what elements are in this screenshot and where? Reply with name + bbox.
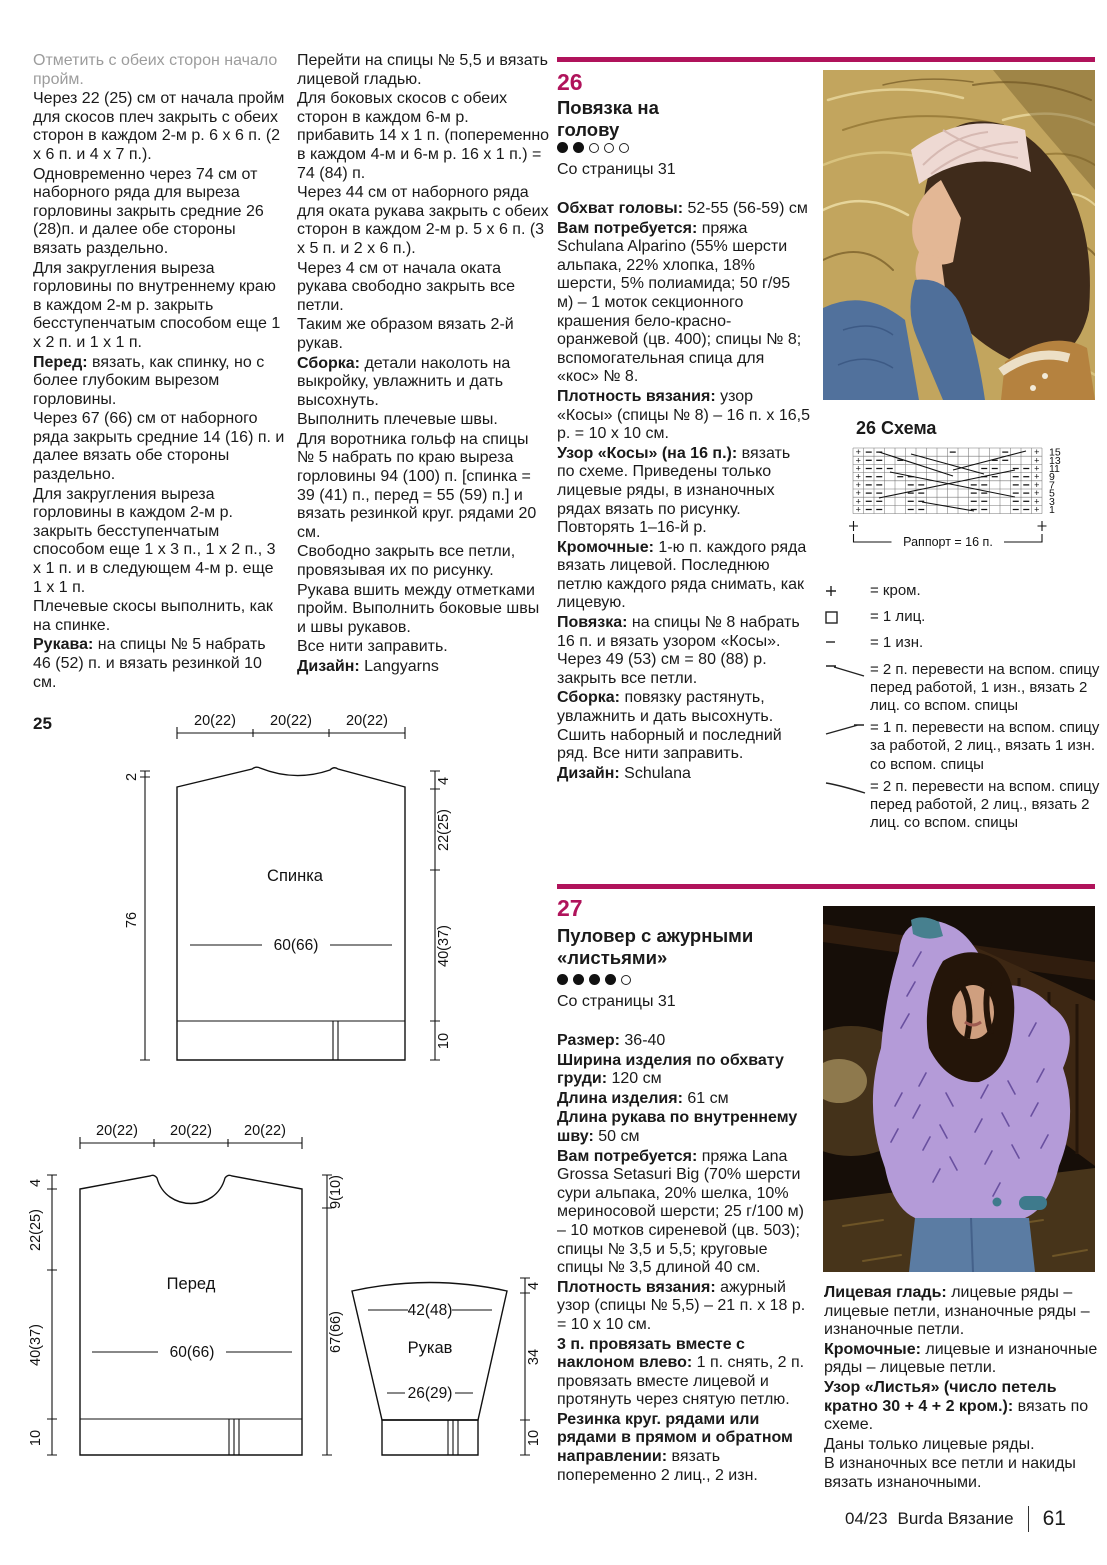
pattern-26-instructions: Обхват головы: 52-55 (56-59) см Вам потр…: [557, 200, 810, 784]
cable-back-symbol-icon: [824, 719, 870, 774]
paragraph: Плотность вязания: ажурный узор (спицы №…: [557, 1279, 810, 1335]
pattern-27-stitch-notes: Лицевая гладь: лицевые ряды – лицевые пе…: [824, 1284, 1100, 1494]
paragraph: Перейти на спицы № 5,5 и вязать лицевой …: [297, 52, 550, 89]
cable-front-symbol-icon: [824, 661, 870, 716]
accent-bar: [557, 57, 1095, 62]
difficulty-dot: [589, 143, 599, 153]
measurement-label: 4: [436, 777, 452, 785]
schematic-back: 20(22) 20(22) 20(22) Спинка 60(66) 2 76 …: [40, 705, 510, 1095]
difficulty-dot: [573, 974, 584, 985]
rib-marks: [448, 1420, 458, 1455]
rapport-label: Раппорт = 16 п.: [903, 535, 993, 549]
purl-symbol-icon: [824, 634, 870, 656]
plus-symbol-icon: [824, 582, 870, 604]
footer-divider: [1028, 1506, 1029, 1532]
paragraph: Плечевые скосы выполнить, как на спинке.: [33, 598, 286, 635]
paragraph: Ширина изделия по обхвату груди: 120 см: [557, 1052, 810, 1089]
difficulty-dot: [621, 975, 631, 985]
pattern-number: 26: [557, 70, 583, 94]
paragraph: Вам потребуется: пряжа Schulana Alparino…: [557, 220, 810, 387]
svg-text:1: 1: [1049, 504, 1055, 516]
paragraph: Повязка: на спицы № 8 набрать 16 п. и вя…: [557, 614, 810, 688]
measurement-label: 60(66): [170, 1344, 215, 1361]
measurement-label: 42(48): [408, 1302, 453, 1319]
measurement-label: 2: [124, 773, 140, 781]
difficulty-dot: [605, 974, 616, 985]
back-left-dimension: [140, 771, 150, 1060]
text-column-2: Перейти на спицы № 5,5 и вязать лицевой …: [297, 52, 550, 678]
difficulty-dot: [619, 143, 629, 153]
pattern-27-instructions: Размер: 36-40 Ширина изделия по обхвату …: [557, 1032, 810, 1486]
piece-name: Перед: [167, 1275, 216, 1293]
paragraph: Все нити заправить.: [297, 638, 550, 657]
paragraph: Через 22 (25) см от начала пройм для ско…: [33, 90, 286, 164]
rapport-bracket: Раппорт = 16 п.: [849, 521, 1047, 549]
page-footer: 04/23 Burda Вязание 61: [845, 1506, 1066, 1532]
difficulty-dot: [604, 143, 614, 153]
paragraph: Перед: вязать, как спинку, но с более гл…: [33, 354, 286, 410]
knit-symbol-icon: [824, 608, 870, 630]
paragraph: Для закругления выреза горловины по внут…: [33, 260, 286, 353]
measurement-label: 20(22): [194, 713, 236, 729]
paragraph: Для боковых скосов с обеих сторон в кажд…: [297, 90, 550, 183]
paragraph: Лицевая гладь: лицевые ряды – лицевые пе…: [824, 1284, 1100, 1340]
paragraph: Отметить с обеих сторон начало пройм.: [33, 52, 286, 89]
paragraph: Кромочные: лицевые и изнаночные ряды – л…: [824, 1341, 1100, 1378]
paragraph: Дизайн: Schulana: [557, 765, 810, 784]
chart-legend: = кром. = 1 лиц. = 1 изн. = 2 п. перевес…: [824, 582, 1102, 836]
paragraph: 3 п. провязать вместе с наклоном влево: …: [557, 1336, 810, 1410]
measurement-label: 76: [124, 912, 140, 928]
schematic-front: 20(22) 20(22) 20(22) Перед 60(66) 4 22(2…: [18, 1092, 368, 1497]
difficulty-dot: [557, 142, 568, 153]
source-page-ref: Со страницы 31: [557, 161, 676, 179]
knitting-chart: ++++++++++++++++15131197531 Раппорт = 16…: [845, 442, 1065, 564]
paragraph: Резинка круг. рядами или рядами в прямом…: [557, 1411, 810, 1485]
measurement-label: 34: [526, 1349, 542, 1365]
paragraph: Плотность вязания: узор «Косы» (спицы № …: [557, 388, 810, 444]
rib-marks: [229, 1419, 239, 1455]
pattern-title: Повязка на голову: [557, 97, 707, 141]
difficulty-dot: [589, 974, 600, 985]
accent-bar: [557, 884, 1095, 889]
measurement-label: 10: [28, 1430, 44, 1446]
magazine-page: Отметить с обеих сторон начало пройм. Че…: [0, 0, 1107, 1565]
rib-marks: [333, 1021, 338, 1060]
svg-text:+: +: [856, 505, 861, 515]
measurement-label: 20(22): [346, 713, 388, 729]
paragraph: Сборка: детали наколоть на выкройку, увл…: [297, 355, 550, 411]
paragraph: В изнаночных все петли и накиды вязать и…: [824, 1455, 1100, 1492]
page-number: 61: [1043, 1507, 1066, 1531]
paragraph: Рукава: на спицы № 5 набрать 46 (52) п. …: [33, 636, 286, 692]
legend-item: = 1 изн.: [824, 634, 1102, 656]
legend-item: = 1 п. перевести на вспом. спицу за рабо…: [824, 719, 1102, 774]
paragraph: Узор «Листья» (число петель кратно 30 + …: [824, 1379, 1100, 1435]
measurement-label: 9(10): [328, 1175, 344, 1209]
measurement-label: 60(66): [274, 937, 319, 954]
footer-issue: 04/23: [845, 1509, 888, 1529]
measurement-label: 22(25): [28, 1209, 44, 1251]
paragraph: Узор «Косы» (на 16 п.): вязать по схеме.…: [557, 445, 810, 538]
paragraph: Вам потребуется: пряжа Lana Grossa Setas…: [557, 1148, 810, 1278]
text-column-1: Отметить с обеих сторон начало пройм. Че…: [33, 52, 286, 693]
paragraph: Выполнить плечевые швы.: [297, 411, 550, 430]
difficulty-dot: [573, 142, 584, 153]
paragraph: Даны только лицевые ряды.: [824, 1436, 1100, 1455]
measurement-label: 40(37): [436, 925, 452, 967]
measurement-label: 20(22): [170, 1123, 212, 1139]
legend-item: = 2 п. перевести на вспом. спицу перед р…: [824, 661, 1102, 716]
source-page-ref: Со страницы 31: [557, 993, 676, 1011]
legend-item: = 1 лиц.: [824, 608, 1102, 630]
paragraph: Через 44 см от наборного ряда для оката …: [297, 184, 550, 258]
difficulty-rating: [557, 140, 634, 158]
sleeve-cuff: [382, 1420, 478, 1455]
measurement-label: 20(22): [270, 713, 312, 729]
paragraph: Размер: 36-40: [557, 1032, 810, 1051]
legend-item: = кром.: [824, 582, 1102, 604]
paragraph: Для закругления выреза горловины в каждо…: [33, 486, 286, 598]
measurement-label: 40(37): [28, 1324, 44, 1366]
paragraph: Свободно закрыть все петли, провязывая и…: [297, 543, 550, 580]
front-left-dimension: [47, 1175, 57, 1455]
cable-front-4-symbol-icon: [824, 778, 870, 833]
measurement-label: 4: [526, 1282, 542, 1290]
measurement-label: 10: [436, 1033, 452, 1049]
paragraph: Кромочные: 1-ю п. каждого ряда вязать ли…: [557, 539, 810, 613]
pattern-title: Пуловер с ажурными «листьями»: [557, 925, 787, 969]
difficulty-dot: [557, 974, 568, 985]
paragraph: Через 4 см от начала оката рукава свобод…: [297, 260, 550, 316]
measurement-label: 20(22): [244, 1123, 286, 1139]
sleeve-right-dimension: [520, 1278, 530, 1455]
photo-pullover-model: [823, 906, 1095, 1272]
paragraph: Длина рукава по внутреннему шву: 50 см: [557, 1109, 810, 1146]
paragraph: Рукава вшить между отметками пройм. Выпо…: [297, 582, 550, 638]
measurement-label: 26(29): [408, 1385, 453, 1402]
measurement-label: 4: [28, 1179, 44, 1187]
paragraph: Обхват головы: 52-55 (56-59) см: [557, 200, 810, 219]
chart-title: 26 Схема: [856, 418, 936, 439]
paragraph: Сборка: повязку растянуть, увлажнить и д…: [557, 689, 810, 763]
piece-name: Спинка: [267, 867, 324, 885]
paragraph: Для воротника гольф на спицы № 5 набрать…: [297, 431, 550, 543]
back-outline: [177, 767, 405, 1060]
paragraph: Длина изделия: 61 см: [557, 1090, 810, 1109]
paragraph: Через 67 (66) см от наборного ряда закры…: [33, 410, 286, 484]
piece-name: Рукав: [408, 1339, 453, 1357]
schematic-sleeve: 42(48) Рукав 26(29) 4 34 10: [325, 1258, 560, 1483]
svg-text:+: +: [1034, 505, 1039, 515]
photo-headband-model: [823, 70, 1095, 400]
paragraph: Одновременно через 74 см от наборного ря…: [33, 166, 286, 259]
footer-magazine: Burda Вязание: [898, 1509, 1014, 1529]
measurement-label: 20(22): [96, 1123, 138, 1139]
difficulty-rating: [557, 972, 636, 990]
measurement-label: 22(25): [436, 809, 452, 851]
paragraph: Таким же образом вязать 2-й рукав.: [297, 316, 550, 353]
pattern-number: 27: [557, 896, 583, 920]
legend-item: = 2 п. перевести на вспом. спицу перед р…: [824, 778, 1102, 833]
measurement-label: 10: [526, 1430, 542, 1446]
front-outline: [80, 1175, 302, 1455]
paragraph: Дизайн: Langyarns: [297, 658, 550, 677]
